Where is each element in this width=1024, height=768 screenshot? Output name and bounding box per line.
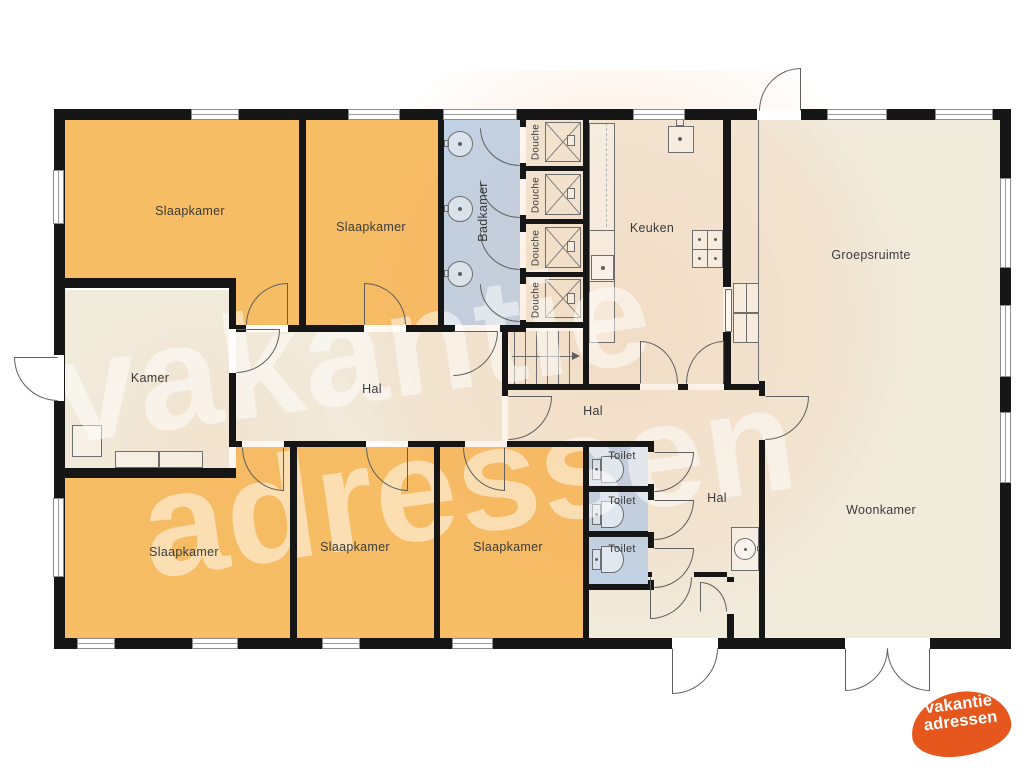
wall-segment	[526, 322, 589, 328]
room-hal-3	[589, 590, 648, 638]
room-label-hal-1: Hal	[362, 382, 382, 396]
window	[191, 109, 239, 120]
window	[1000, 412, 1011, 483]
room-label-slaapkamer-5: Slaapkamer	[473, 540, 543, 554]
window	[53, 170, 64, 224]
bench-icon	[115, 451, 159, 468]
window	[348, 109, 400, 120]
wall-segment	[723, 332, 731, 384]
room-label-douche-3: Douche	[531, 230, 542, 266]
wall-segment	[526, 166, 583, 171]
window	[1000, 178, 1011, 268]
wall-segment	[288, 325, 364, 332]
burner-icon	[714, 238, 717, 241]
room-label-keuken: Keuken	[630, 221, 674, 235]
wall-segment	[408, 441, 465, 447]
stair-tread	[536, 331, 537, 384]
wall-segment	[434, 447, 440, 638]
bench-icon	[159, 451, 203, 468]
room-label-badkamer: Badkamer	[476, 182, 490, 241]
tap-icon	[444, 205, 449, 212]
shower-tray-icon	[545, 174, 581, 215]
sink-drain-icon	[678, 137, 682, 141]
wall-segment	[290, 447, 297, 638]
tap-icon	[444, 270, 449, 277]
burner-icon	[698, 257, 701, 260]
room-label-slaapkamer-4: Slaapkamer	[320, 540, 390, 554]
stair-tread	[569, 331, 570, 384]
wall-segment	[406, 325, 455, 332]
window	[452, 638, 493, 649]
window	[77, 638, 115, 649]
stair-tread	[514, 331, 515, 384]
window	[322, 638, 360, 649]
shower-head-icon	[567, 188, 575, 199]
closet-icon	[72, 425, 102, 457]
tap-icon	[676, 119, 684, 126]
door-arc	[845, 648, 888, 691]
wall-segment	[583, 119, 589, 384]
wall-segment	[589, 486, 648, 492]
window	[633, 109, 685, 120]
stair-tread	[525, 331, 526, 384]
cabinet-line	[746, 283, 747, 343]
boiler-dot-icon	[744, 548, 747, 551]
counter-line	[589, 281, 615, 282]
wall-segment	[507, 441, 654, 447]
wall-segment	[284, 441, 366, 447]
kitchen-counter	[589, 123, 615, 343]
room-label-douche-4: Douche	[531, 282, 542, 318]
wall-segment	[63, 278, 236, 288]
room-label-toilet-2: Toilet	[608, 495, 635, 507]
room-divider-line	[758, 119, 759, 381]
room-label-woonkamer: Woonkamer	[846, 503, 916, 517]
wall-segment	[723, 119, 731, 287]
window	[53, 498, 64, 577]
wall-segment	[727, 614, 734, 638]
window	[935, 109, 993, 120]
wall-segment	[759, 440, 765, 638]
burner-icon	[714, 257, 717, 260]
flush-icon	[595, 558, 598, 561]
room-label-hal-2: Hal	[583, 404, 603, 418]
room-label-slaapkamer-3: Slaapkamer	[149, 545, 219, 559]
door-arc	[14, 357, 58, 401]
shower-tray-icon	[545, 227, 581, 268]
room-label-douche-1: Douche	[531, 124, 542, 160]
wall-segment	[229, 284, 236, 329]
sink-drain-icon	[458, 142, 462, 146]
stair-tread	[547, 331, 548, 384]
room-label-kamer: Kamer	[131, 371, 169, 385]
wall-segment	[589, 531, 648, 537]
room-label-douche-2: Douche	[531, 177, 542, 213]
tap-icon	[444, 140, 449, 147]
flush-icon	[595, 468, 598, 471]
sink-drain-icon	[458, 272, 462, 276]
door-arc	[759, 68, 801, 111]
wall-segment	[727, 577, 734, 582]
sink-drain-icon	[601, 266, 605, 270]
room-label-toilet-3: Toilet	[608, 543, 635, 555]
door-arc	[672, 648, 718, 694]
wall-segment	[299, 119, 306, 325]
floorplan-canvas: vakantie adressen SlaapkamerSlaapkamerBa…	[0, 0, 1024, 768]
stair-arrow-head-icon	[572, 352, 580, 360]
wall-segment	[724, 384, 765, 390]
shower-head-icon	[567, 135, 575, 146]
wall-segment	[500, 325, 526, 332]
counter-line	[589, 230, 615, 231]
wall-segment	[520, 119, 526, 127]
window	[192, 638, 238, 649]
window	[443, 109, 517, 120]
burner-icon	[698, 238, 701, 241]
wall-segment	[229, 373, 236, 441]
room-label-groepsruimte: Groepsruimte	[831, 248, 910, 262]
wall-segment	[583, 441, 589, 638]
room-slaapkamer-1	[63, 119, 299, 278]
vakantieadressen-logo: vakantie adressen	[901, 679, 1021, 768]
stove-line	[707, 230, 708, 268]
sink-drain-icon	[458, 207, 462, 211]
room-label-slaapkamer-1: Slaapkamer	[155, 204, 225, 218]
window	[827, 109, 887, 120]
room-label-toilet-1: Toilet	[608, 450, 635, 462]
wall-segment	[526, 272, 583, 277]
room-label-slaapkamer-2: Slaapkamer	[336, 220, 406, 234]
wall-segment	[589, 584, 654, 590]
wall-segment	[694, 572, 727, 577]
serving-hatch	[725, 289, 732, 332]
wall-segment	[55, 468, 236, 478]
flush-icon	[595, 513, 598, 516]
shower-tray-icon	[545, 279, 581, 318]
window	[1000, 305, 1011, 377]
wall-segment	[678, 384, 688, 390]
stair-tread	[558, 331, 559, 384]
door-arc	[887, 648, 930, 691]
stair-arrow-line	[512, 356, 574, 357]
wall-segment	[502, 384, 640, 390]
shower-tray-icon	[545, 122, 581, 162]
wall-segment	[438, 119, 444, 325]
wall-segment	[229, 441, 242, 447]
wall-segment	[526, 219, 583, 224]
room-label-hal-3: Hal	[707, 491, 727, 505]
shower-head-icon	[567, 241, 575, 252]
shower-head-icon	[567, 293, 575, 304]
